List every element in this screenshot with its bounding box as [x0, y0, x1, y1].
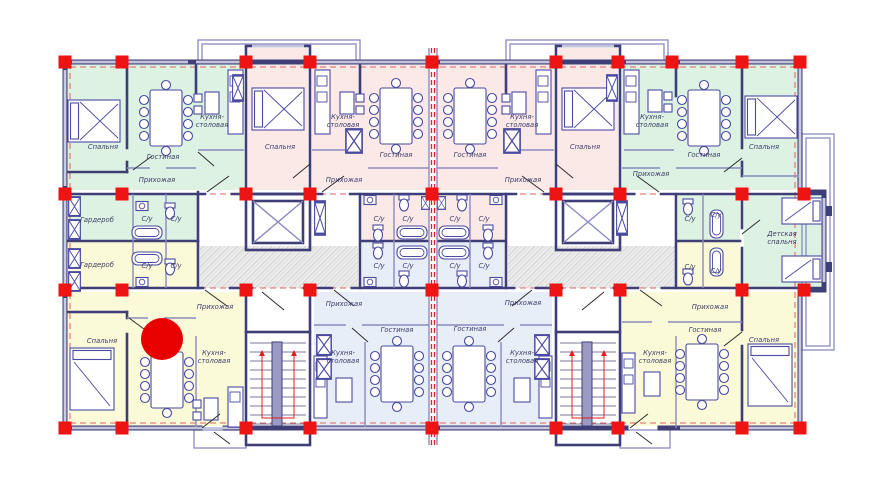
- room-label: Кухня-столовая: [327, 349, 360, 365]
- room-label: С/у: [373, 262, 385, 270]
- room-label: С/у: [402, 262, 414, 270]
- room-label: С/у: [710, 211, 722, 219]
- room-label: Прихожая: [197, 303, 233, 311]
- room-label: С/у: [402, 215, 414, 223]
- room-label: Гостиная: [147, 153, 180, 161]
- room-label: Спальня: [265, 143, 295, 151]
- corridor-left: [200, 246, 358, 288]
- room-label: Спальня: [87, 337, 117, 345]
- room-label: Гостиная: [380, 151, 413, 159]
- room-label: Гостиная: [689, 326, 722, 334]
- room-label: С/у: [141, 262, 153, 270]
- room-label: С/у: [449, 262, 461, 270]
- room-label: С/у: [710, 267, 722, 275]
- elevator-1: [246, 194, 310, 250]
- expansion-joint: [429, 48, 437, 445]
- room-label: С/у: [684, 215, 696, 223]
- room-label: Гардероб: [80, 216, 114, 224]
- room-label: Спальня: [570, 143, 600, 151]
- room-label: Кухня-столовая: [327, 113, 360, 129]
- room-label: Гостиная: [454, 325, 487, 333]
- room-label: Прихожая: [326, 176, 362, 184]
- floor-plan-page: СпальняГостинаяКухня-столоваяПрихожаяСпа…: [0, 0, 888, 499]
- room-label: С/у: [684, 263, 696, 271]
- room-label: Кухня-столовая: [639, 349, 672, 365]
- room-label: Детскаяспальня: [766, 230, 797, 246]
- room-label: Прихожая: [326, 300, 362, 308]
- room-label: С/у: [170, 215, 182, 223]
- room-label: С/у: [478, 262, 490, 270]
- floor-plan-svg: СпальняГостинаяКухня-столоваяПрихожаяСпа…: [0, 0, 888, 499]
- selected-apartment-marker[interactable]: [141, 318, 183, 360]
- room-label: Кухня-столовая: [506, 113, 539, 129]
- room-label: Спальня: [749, 143, 779, 151]
- corridor-right: [508, 246, 676, 288]
- room-label: Гостиная: [381, 326, 414, 334]
- room-label: Гостиная: [688, 151, 721, 159]
- room-label: Гардероб: [80, 261, 114, 269]
- room-label: Кухня-столовая: [636, 113, 669, 129]
- room-label: Кухня-столовая: [196, 113, 229, 129]
- room-label: Спальня: [749, 336, 779, 344]
- room-label: Кухня-столовая: [506, 349, 539, 365]
- elevator-2: [556, 194, 620, 250]
- room-label: Прихожая: [633, 170, 669, 178]
- room-label: С/у: [170, 262, 182, 270]
- room-label: С/у: [449, 215, 461, 223]
- room-label: Прихожая: [139, 176, 175, 184]
- room-label: Кухня-столовая: [198, 349, 231, 365]
- room-label: С/у: [478, 215, 490, 223]
- room-label: Спальня: [88, 143, 118, 151]
- room-label: Гостиная: [454, 151, 487, 159]
- room-label: Прихожая: [505, 176, 541, 184]
- room-label: С/у: [141, 215, 153, 223]
- room-label: Прихожая: [692, 303, 728, 311]
- room-label: С/у: [373, 215, 385, 223]
- room-label: Прихожая: [505, 299, 541, 307]
